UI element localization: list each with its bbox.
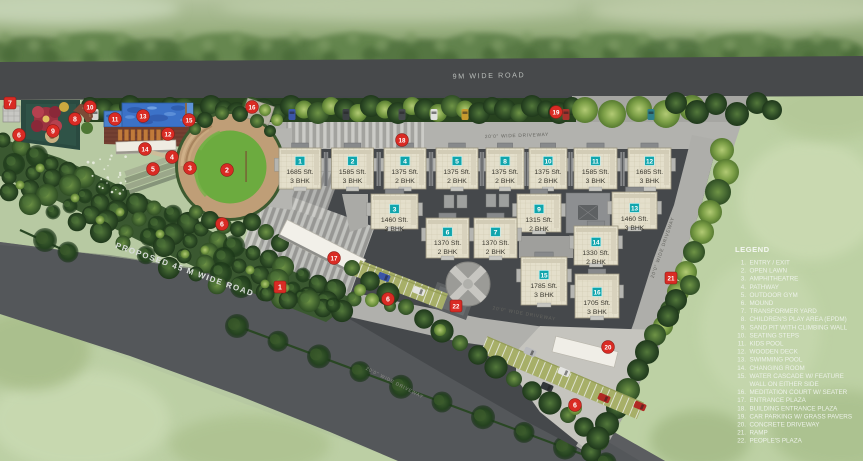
svg-text:18: 18 <box>399 137 406 144</box>
svg-text:2 BHK: 2 BHK <box>538 178 558 185</box>
svg-text:22: 22 <box>453 303 460 310</box>
svg-text:13: 13 <box>140 113 147 120</box>
svg-text:WATER CASCADE W/ FEATURE: WATER CASCADE W/ FEATURE <box>750 373 844 380</box>
svg-text:3 BHK: 3 BHK <box>625 225 645 232</box>
svg-text:3.: 3. <box>741 276 747 283</box>
svg-text:8.: 8. <box>741 316 747 323</box>
svg-text:1375 Sft.: 1375 Sft. <box>534 169 561 176</box>
svg-text:3 BHK: 3 BHK <box>385 226 405 233</box>
svg-text:SEATING STEPS: SEATING STEPS <box>750 332 800 339</box>
svg-text:5: 5 <box>455 159 459 166</box>
svg-text:ENTRANCE PLAZA: ENTRANCE PLAZA <box>750 397 807 404</box>
svg-text:ENTRY / EXIT: ENTRY / EXIT <box>750 260 791 267</box>
svg-text:2: 2 <box>351 159 355 166</box>
svg-text:12: 12 <box>646 159 654 166</box>
svg-text:10: 10 <box>87 104 94 111</box>
svg-text:11.: 11. <box>738 341 747 348</box>
svg-text:22.: 22. <box>737 438 746 445</box>
svg-text:4: 4 <box>403 159 407 166</box>
svg-text:3: 3 <box>188 165 192 172</box>
svg-text:16.: 16. <box>737 389 746 396</box>
svg-text:1.: 1. <box>741 260 747 267</box>
svg-text:1370 Sft.: 1370 Sft. <box>434 240 461 247</box>
svg-text:1: 1 <box>298 159 302 166</box>
svg-text:3 BHK: 3 BHK <box>587 309 607 316</box>
svg-text:PATHWAY: PATHWAY <box>750 284 780 291</box>
svg-text:1375 Sft.: 1375 Sft. <box>391 169 418 176</box>
svg-text:9: 9 <box>51 128 55 135</box>
svg-text:14: 14 <box>592 240 600 247</box>
svg-text:3 BHK: 3 BHK <box>640 178 660 185</box>
svg-text:18.: 18. <box>737 405 746 412</box>
svg-text:2 BHK: 2 BHK <box>495 178 515 185</box>
svg-text:20: 20 <box>605 344 612 351</box>
svg-text:CHILDREN'S PLAY AREA (EPDM): CHILDREN'S PLAY AREA (EPDM) <box>750 316 847 323</box>
svg-text:1: 1 <box>278 284 282 291</box>
svg-text:1685 Sft.: 1685 Sft. <box>286 169 313 176</box>
svg-text:9: 9 <box>537 207 541 214</box>
svg-text:15.: 15. <box>737 373 746 380</box>
svg-text:13.: 13. <box>737 357 746 364</box>
svg-text:15: 15 <box>186 117 193 124</box>
svg-text:16: 16 <box>593 290 601 297</box>
svg-text:20.: 20. <box>737 422 746 429</box>
svg-text:1785 Sft.: 1785 Sft. <box>530 283 557 290</box>
svg-text:1375 Sft.: 1375 Sft. <box>443 169 470 176</box>
svg-text:3 BHK: 3 BHK <box>343 178 363 185</box>
svg-text:2 BHK: 2 BHK <box>438 249 458 256</box>
svg-text:6.: 6. <box>741 300 747 307</box>
svg-text:16: 16 <box>249 104 256 111</box>
svg-text:2 BHK: 2 BHK <box>486 249 506 256</box>
svg-text:1705 Sft.: 1705 Sft. <box>583 300 610 307</box>
svg-text:2: 2 <box>225 167 229 174</box>
svg-text:RAMP: RAMP <box>750 430 768 437</box>
svg-text:11: 11 <box>112 116 119 123</box>
svg-text:SAND PIT WITH CLIMBING WALL: SAND PIT WITH CLIMBING WALL <box>750 324 848 331</box>
svg-text:1460 Sft.: 1460 Sft. <box>621 216 648 223</box>
svg-text:OUTDOOR GYM: OUTDOOR GYM <box>750 292 798 299</box>
svg-text:9.: 9. <box>741 324 747 331</box>
svg-text:3 BHK: 3 BHK <box>534 292 554 299</box>
svg-text:LEGEND: LEGEND <box>735 245 770 254</box>
svg-text:AMPHITHEATRE: AMPHITHEATRE <box>750 276 799 283</box>
svg-text:2.: 2. <box>741 268 747 275</box>
svg-text:6: 6 <box>220 221 224 228</box>
svg-text:17: 17 <box>331 255 338 262</box>
svg-text:1685 Sft.: 1685 Sft. <box>636 169 663 176</box>
svg-text:WALL ON EITHER SIDE: WALL ON EITHER SIDE <box>750 381 819 388</box>
svg-text:1315 Sft.: 1315 Sft. <box>525 217 552 224</box>
svg-text:TRANSFORMER YARD: TRANSFORMER YARD <box>750 308 818 315</box>
svg-text:2 BHK: 2 BHK <box>586 259 606 266</box>
svg-text:CONCRETE DRIVEWAY: CONCRETE DRIVEWAY <box>750 422 821 429</box>
svg-text:21: 21 <box>668 275 675 282</box>
svg-text:12.: 12. <box>737 349 746 356</box>
svg-text:4: 4 <box>170 154 174 161</box>
svg-text:1460 Sft.: 1460 Sft. <box>381 217 408 224</box>
svg-text:BUILDING ENTRANCE PLAZA: BUILDING ENTRANCE PLAZA <box>750 405 839 412</box>
svg-text:6: 6 <box>17 132 21 139</box>
svg-text:MOUND: MOUND <box>750 300 774 307</box>
svg-text:10.: 10. <box>737 332 746 339</box>
svg-text:4.: 4. <box>741 284 747 291</box>
svg-text:7: 7 <box>8 100 12 107</box>
svg-text:19.: 19. <box>737 413 746 420</box>
svg-text:MEDITATION COURT W/ SEATER: MEDITATION COURT W/ SEATER <box>750 389 848 396</box>
svg-text:OPEN LAWN: OPEN LAWN <box>750 268 788 275</box>
svg-text:PEOPLE'S PLAZA: PEOPLE'S PLAZA <box>750 438 803 445</box>
svg-text:10: 10 <box>544 159 552 166</box>
svg-text:14: 14 <box>142 146 149 153</box>
svg-text:9M WIDE ROAD: 9M WIDE ROAD <box>453 70 526 81</box>
svg-text:2 BHK: 2 BHK <box>395 178 415 185</box>
svg-text:19: 19 <box>553 109 560 116</box>
svg-text:SWIMMING POOL: SWIMMING POOL <box>750 357 803 364</box>
svg-text:21.: 21. <box>737 430 746 437</box>
svg-text:11: 11 <box>592 159 599 166</box>
svg-text:2 BHK: 2 BHK <box>529 226 549 233</box>
svg-text:5: 5 <box>151 166 155 173</box>
svg-text:8: 8 <box>503 159 507 166</box>
svg-text:1585 Sft.: 1585 Sft. <box>339 169 366 176</box>
svg-text:6: 6 <box>386 296 390 303</box>
svg-text:1370 Sft.: 1370 Sft. <box>482 240 509 247</box>
svg-text:1585 Sft.: 1585 Sft. <box>582 169 609 176</box>
svg-text:7.: 7. <box>741 308 747 315</box>
svg-text:12: 12 <box>165 131 172 138</box>
svg-text:14.: 14. <box>737 365 746 372</box>
svg-text:5.: 5. <box>741 292 747 299</box>
svg-text:CAR PARKING W/ GRASS PAVERS: CAR PARKING W/ GRASS PAVERS <box>750 413 853 420</box>
svg-text:3: 3 <box>393 207 397 214</box>
svg-text:CHANGING ROOM: CHANGING ROOM <box>750 365 805 372</box>
svg-text:15: 15 <box>540 273 548 280</box>
svg-text:7: 7 <box>494 230 498 237</box>
svg-text:6: 6 <box>573 402 577 409</box>
svg-text:3 BHK: 3 BHK <box>586 178 606 185</box>
svg-text:6: 6 <box>446 230 450 237</box>
svg-text:2 BHK: 2 BHK <box>447 178 467 185</box>
svg-text:1330 Sft.: 1330 Sft. <box>582 250 609 257</box>
svg-text:WOODEN DECK: WOODEN DECK <box>750 349 799 356</box>
svg-text:13: 13 <box>631 206 639 213</box>
svg-text:KIDS POOL: KIDS POOL <box>750 341 784 348</box>
svg-text:1375 Sft.: 1375 Sft. <box>491 169 518 176</box>
svg-text:8: 8 <box>73 116 77 123</box>
svg-text:17.: 17. <box>737 397 746 404</box>
svg-text:3 BHK: 3 BHK <box>290 178 310 185</box>
